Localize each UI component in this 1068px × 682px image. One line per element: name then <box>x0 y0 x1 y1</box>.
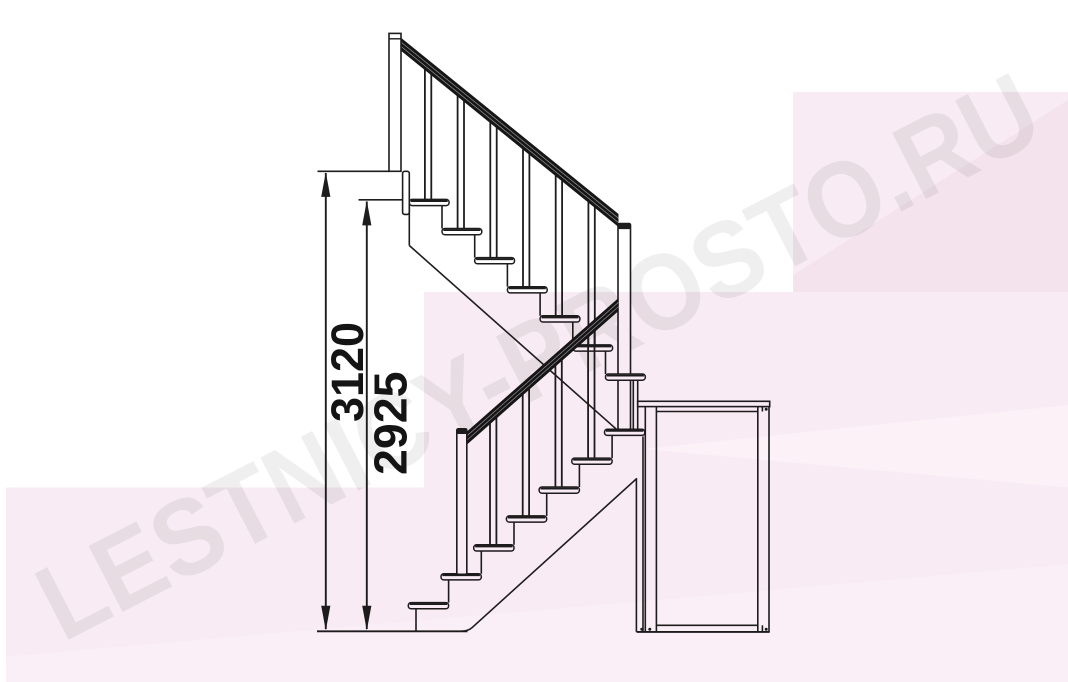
svg-text:2925: 2925 <box>364 372 416 475</box>
